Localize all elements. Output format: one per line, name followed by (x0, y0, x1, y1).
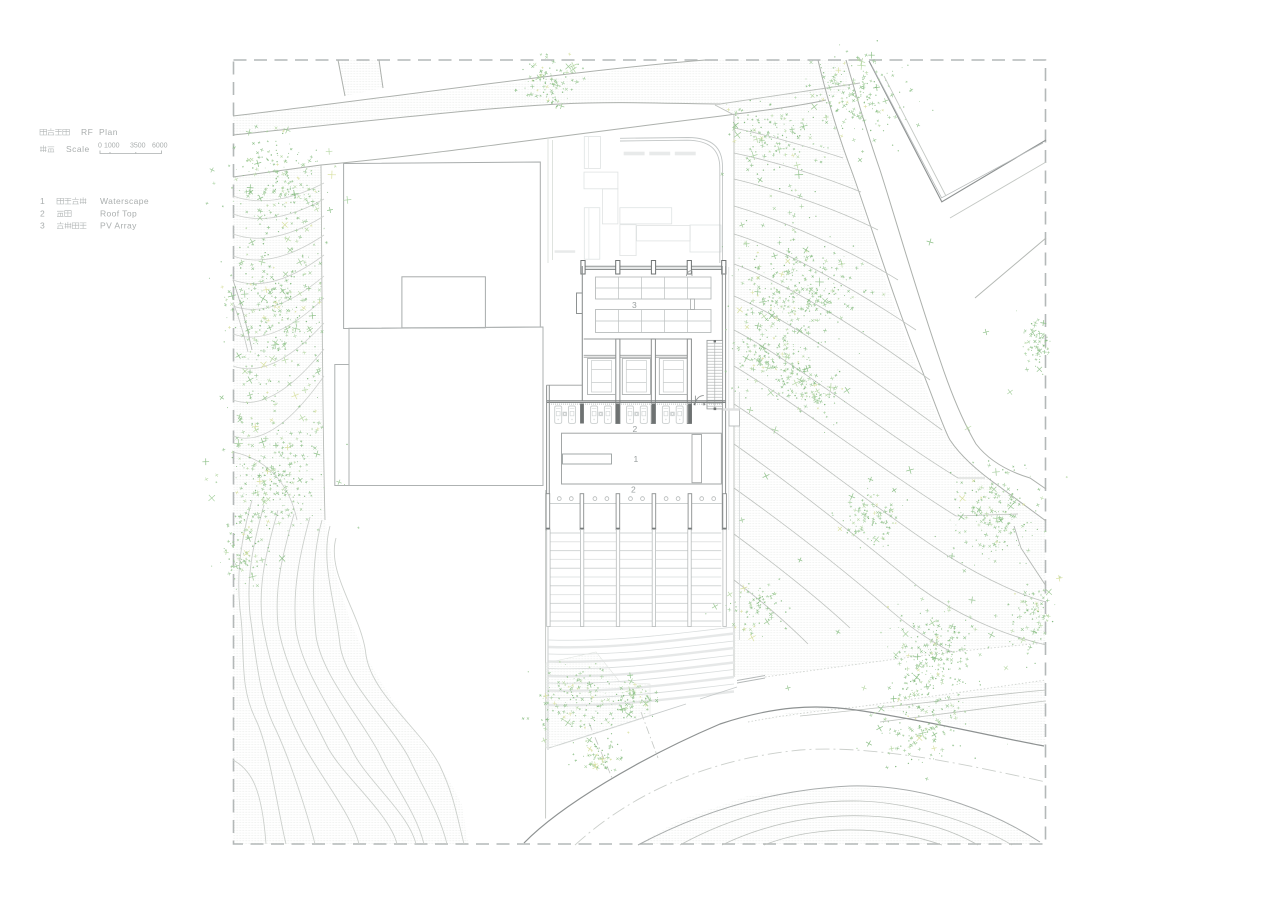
svg-text:3500: 3500 (130, 143, 146, 150)
svg-text:3: 3 (40, 221, 45, 231)
svg-text:6000: 6000 (152, 143, 168, 150)
svg-text:2: 2 (631, 485, 636, 495)
svg-text:Plan: Plan (99, 127, 118, 137)
svg-text:2: 2 (40, 208, 45, 218)
svg-text:Roof Top: Roof Top (100, 208, 137, 218)
svg-text:Scale: Scale (66, 144, 90, 154)
svg-text:1000: 1000 (104, 143, 120, 150)
svg-text:2: 2 (633, 424, 638, 434)
svg-text:1: 1 (634, 454, 639, 464)
svg-text:Waterscape: Waterscape (100, 196, 149, 206)
svg-text:RF: RF (81, 127, 93, 137)
svg-text:PV Array: PV Array (100, 221, 137, 231)
svg-text:3: 3 (632, 300, 637, 310)
svg-text:1: 1 (40, 196, 45, 206)
svg-text:0: 0 (98, 143, 102, 150)
